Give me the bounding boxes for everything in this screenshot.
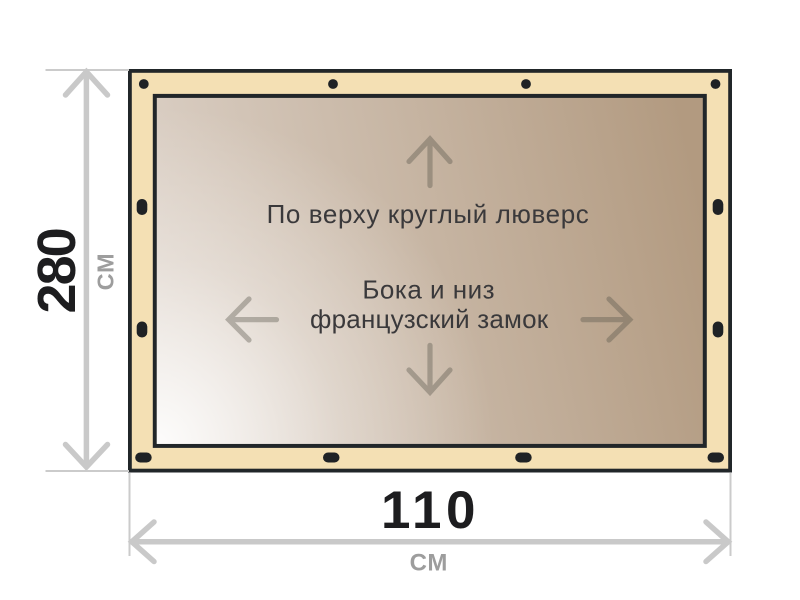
svg-text:СМ: СМ bbox=[93, 253, 119, 291]
svg-text:280: 280 bbox=[27, 229, 87, 313]
svg-text:Бока и низ: Бока и низ bbox=[362, 274, 495, 304]
svg-text:французский замок: французский замок bbox=[310, 304, 549, 334]
svg-text:СМ: СМ bbox=[410, 550, 449, 577]
svg-text:110: 110 bbox=[381, 481, 480, 540]
svg-text:По верху круглый люверс: По верху круглый люверс bbox=[267, 199, 590, 229]
